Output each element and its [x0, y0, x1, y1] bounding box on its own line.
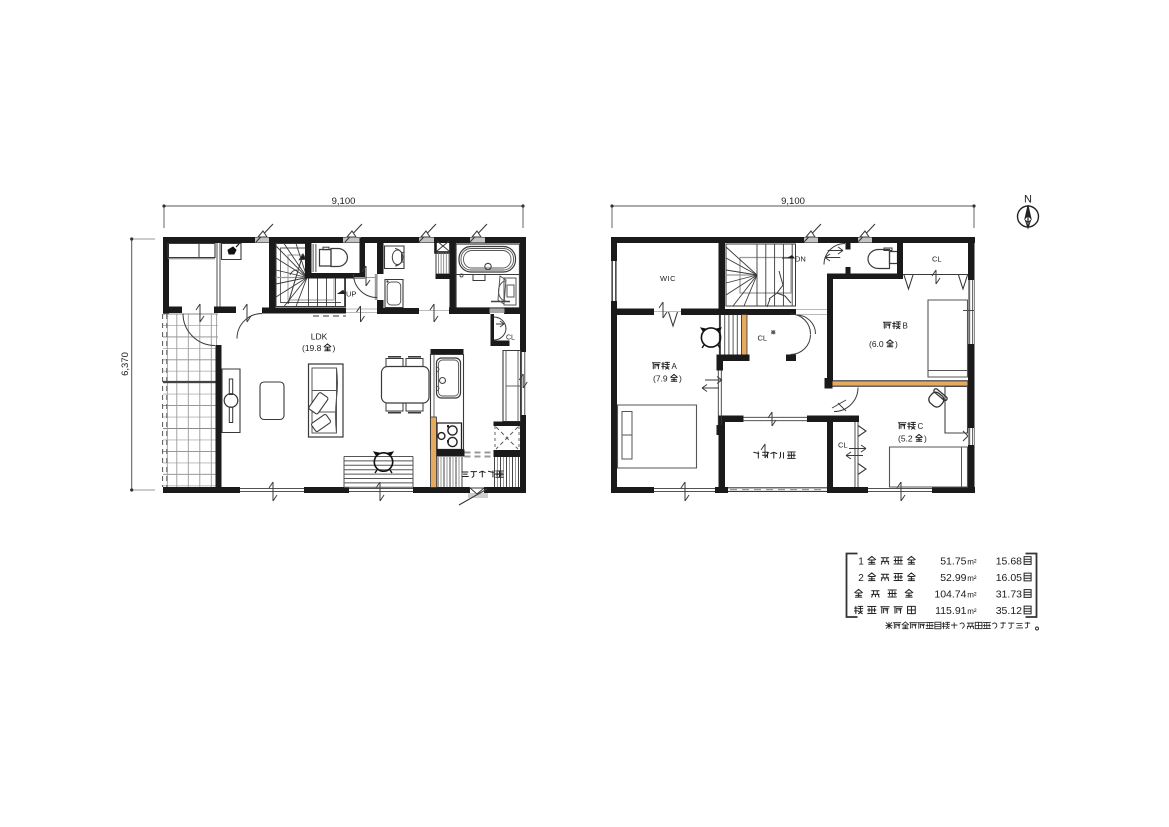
svg-text:C: C: [918, 422, 924, 431]
svg-text:DN: DN: [795, 255, 806, 264]
svg-text:1: 1: [858, 557, 864, 568]
svg-text:N: N: [1024, 194, 1032, 206]
svg-text:B: B: [903, 322, 908, 331]
svg-text:A: A: [672, 362, 678, 371]
svg-text:104.74: 104.74: [934, 589, 966, 601]
svg-text:CL: CL: [838, 441, 848, 450]
svg-text:(19.8: (19.8: [302, 343, 322, 353]
svg-text:2: 2: [858, 573, 864, 584]
svg-text:): ): [679, 374, 682, 384]
svg-text:LDK: LDK: [311, 332, 328, 342]
svg-text:16.05: 16.05: [996, 572, 1022, 584]
svg-text:6,370: 6,370: [120, 352, 131, 376]
svg-text:CL: CL: [758, 334, 768, 343]
svg-text:m²: m²: [967, 591, 977, 600]
svg-text:UP: UP: [346, 290, 356, 299]
svg-text:CL: CL: [506, 335, 515, 342]
svg-text:): ): [895, 339, 898, 349]
svg-text:31.73: 31.73: [996, 589, 1022, 601]
svg-text:9,100: 9,100: [781, 196, 805, 207]
svg-text:51.75: 51.75: [940, 556, 966, 568]
svg-text:WIC: WIC: [660, 274, 676, 283]
svg-text:m²: m²: [967, 607, 977, 616]
svg-text:(5.2: (5.2: [898, 434, 913, 444]
svg-text:9,100: 9,100: [332, 196, 356, 207]
svg-text:(6.0: (6.0: [869, 339, 884, 349]
svg-text:m²: m²: [967, 558, 977, 567]
svg-text:): ): [333, 343, 336, 353]
svg-text:35.12: 35.12: [996, 605, 1022, 617]
svg-text:m²: m²: [967, 574, 977, 583]
svg-text:): ): [924, 434, 927, 444]
svg-text:(7.9: (7.9: [653, 374, 668, 384]
svg-text:115.91: 115.91: [935, 605, 966, 617]
svg-text:15.68: 15.68: [996, 556, 1022, 568]
svg-text:52.99: 52.99: [940, 572, 966, 584]
svg-text:CL: CL: [932, 255, 942, 264]
